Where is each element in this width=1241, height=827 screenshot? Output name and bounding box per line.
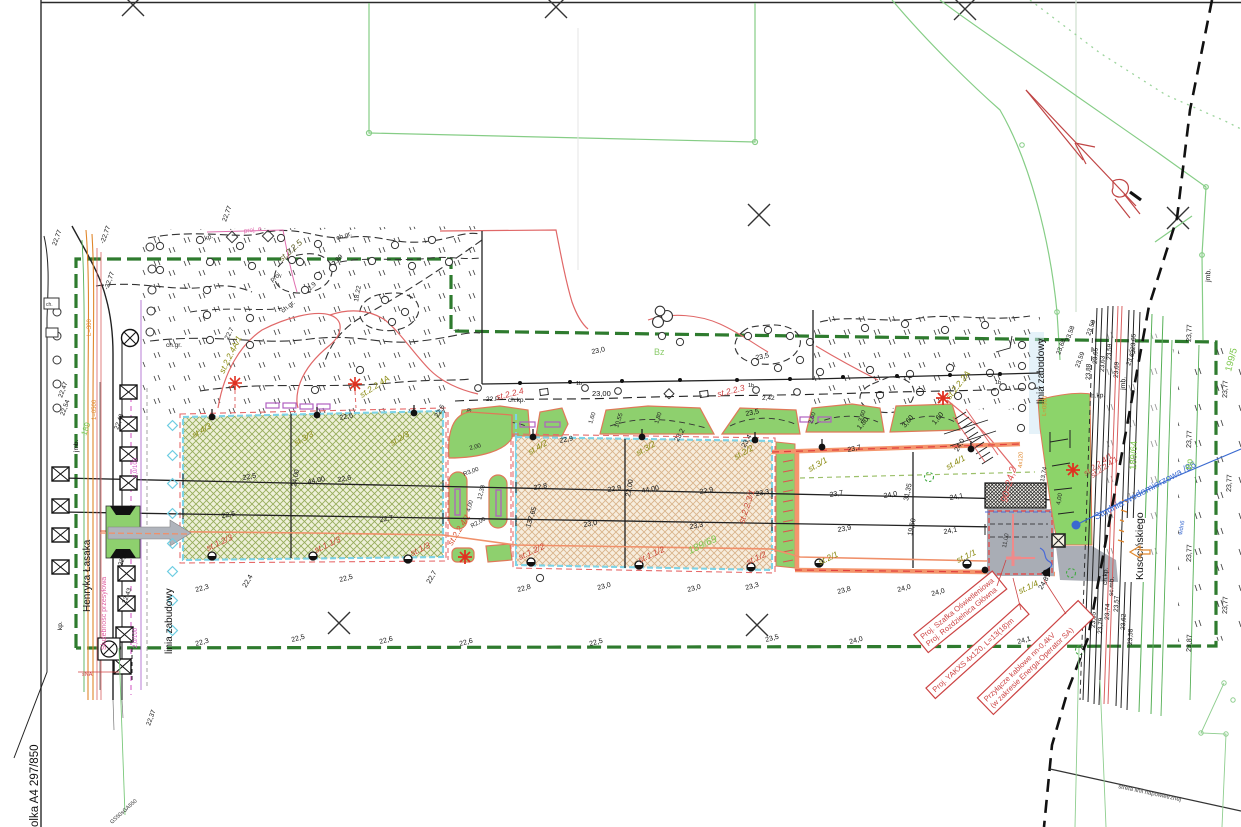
svg-text:olka A4 297/850: olka A4 297/850	[29, 745, 41, 827]
svg-text:ch.: ch.	[46, 302, 53, 308]
svg-text:189/64: 189/64	[1128, 441, 1140, 470]
svg-text:jmb.: jmb.	[1120, 377, 1127, 392]
svg-text:linia zabudowy: linia zabudowy	[164, 588, 175, 654]
svg-text:23,62: 23,62	[1120, 613, 1128, 630]
svg-text:23,88: 23,88	[1085, 363, 1093, 380]
svg-text:23,57: 23,57	[1113, 595, 1121, 612]
svg-text:1b: 1b	[995, 380, 1001, 386]
svg-text:Bz: Bz	[654, 347, 665, 357]
svg-text:Henryka Łasaka: Henryka Łasaka	[82, 539, 93, 612]
svg-text:2,0/100: 2,0/100	[133, 457, 139, 478]
svg-text:L=300: L=300	[87, 318, 93, 336]
svg-text:1b: 1b	[748, 383, 754, 389]
svg-text:2,42: 2,42	[762, 395, 775, 402]
svg-text:4x120: 4x120	[1018, 451, 1025, 468]
svg-text:ch.kp.: ch.kp.	[1102, 567, 1110, 585]
svg-text:jmb.: jmb.	[73, 440, 80, 453]
svg-text:23,77: 23,77	[1222, 596, 1230, 614]
svg-text:23,65: 23,65	[1130, 333, 1138, 350]
svg-text:kp.: kp.	[57, 621, 64, 630]
svg-text:23,58: 23,58	[1127, 628, 1135, 645]
svg-text:1b: 1b	[576, 381, 582, 387]
svg-text:1=0500: 1=0500	[92, 399, 98, 420]
svg-text:23,74: 23,74	[1104, 603, 1112, 620]
svg-text:linia zabudowy: linia zabudowy	[1036, 338, 1047, 404]
svg-text:23,59: 23,59	[1106, 343, 1114, 360]
svg-text:23,00: 23,00	[592, 389, 611, 398]
svg-text:23,77: 23,77	[1186, 430, 1194, 448]
svg-text:23,77: 23,77	[1186, 544, 1194, 562]
svg-text:Bp: Bp	[1184, 459, 1194, 470]
svg-text:ch.gr.: ch.gr.	[166, 342, 182, 349]
svg-text:23,77: 23,77	[1222, 380, 1230, 398]
svg-text:Służebność przesyłowa: Służebność przesyłowa	[101, 577, 108, 650]
svg-text:23,87: 23,87	[1186, 634, 1194, 652]
svg-text:23,77: 23,77	[1186, 324, 1194, 342]
svg-text:L=0500: L=0500	[1042, 395, 1049, 416]
svg-text:sNA: sNA	[82, 672, 93, 678]
svg-text:2,0/100: 2,0/100	[133, 627, 139, 648]
svg-text:23,69: 23,69	[1113, 361, 1121, 378]
svg-text:jmb.: jmb.	[1205, 269, 1212, 284]
svg-text:23,77: 23,77	[1226, 474, 1234, 492]
